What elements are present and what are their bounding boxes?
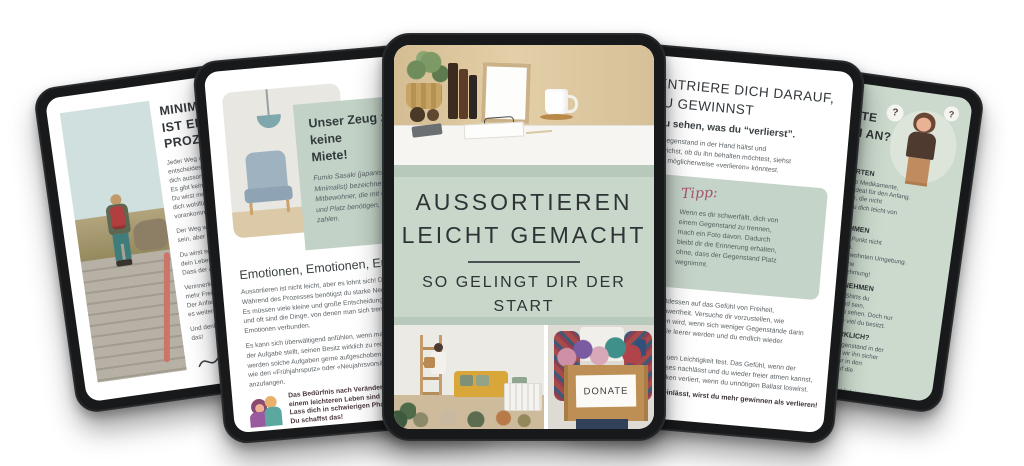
cover-title: AUSSORTIEREN LEICHT GEMACHT (394, 186, 654, 252)
pinecone (410, 107, 425, 122)
lamp-cord (265, 89, 269, 115)
title-divider (468, 261, 580, 263)
plant-foliage (402, 49, 450, 87)
tidying-room-photo (394, 325, 544, 429)
woman-top (906, 131, 937, 161)
radiator (504, 383, 542, 411)
boardwalk (81, 249, 187, 382)
book (459, 69, 468, 119)
sofa-cushion (476, 375, 489, 386)
red-stripe (164, 252, 170, 362)
red-backpack (109, 205, 126, 230)
person-head (434, 343, 443, 352)
ebook-mockup-stage: MINIMALISMUS IST EIN PROZESS Jeder Weg i… (0, 0, 1024, 466)
tipp-script-label: Tipp: (681, 185, 718, 202)
tablet-cover-page: AUSSORTIEREN LEICHT GEMACHT SO GELINGT D… (382, 33, 666, 441)
cardboard-box: DONATE (564, 365, 648, 421)
donate-box-photo: DONATE (548, 325, 654, 429)
plant-basket (406, 83, 442, 109)
sage-strip (394, 317, 654, 325)
mug (545, 89, 568, 115)
donate-sign: DONATE (576, 374, 637, 407)
book (469, 75, 477, 119)
coaster (540, 114, 573, 120)
cover-title-block: AUSSORTIEREN LEICHT GEMACHT SO GELINGT D… (394, 177, 654, 317)
cover-subtitle: SO GELINGT DIR DER START (394, 271, 654, 319)
carry-basket (424, 357, 435, 368)
clothes-pile (556, 335, 646, 367)
sage-strip (394, 165, 654, 177)
figure-body-teal (264, 406, 283, 426)
pinecone (427, 109, 439, 121)
sofa-cushion (460, 375, 473, 386)
desk-photo (394, 45, 654, 165)
picture-frame (481, 62, 531, 124)
cover-page: AUSSORTIEREN LEICHT GEMACHT SO GELINGT D… (394, 45, 654, 429)
clutter-pile (400, 409, 538, 427)
plant-leaves (394, 399, 416, 429)
jeans (576, 419, 628, 429)
pendant-lamp (257, 114, 282, 129)
hug-illustration (248, 393, 285, 428)
cover-bottom-photos: DONATE (394, 325, 654, 429)
tipp-text: Wenn es dir schwerfällt, dich von einem … (675, 208, 816, 280)
notepad (464, 121, 525, 139)
book (448, 63, 458, 119)
rocks (132, 218, 170, 252)
